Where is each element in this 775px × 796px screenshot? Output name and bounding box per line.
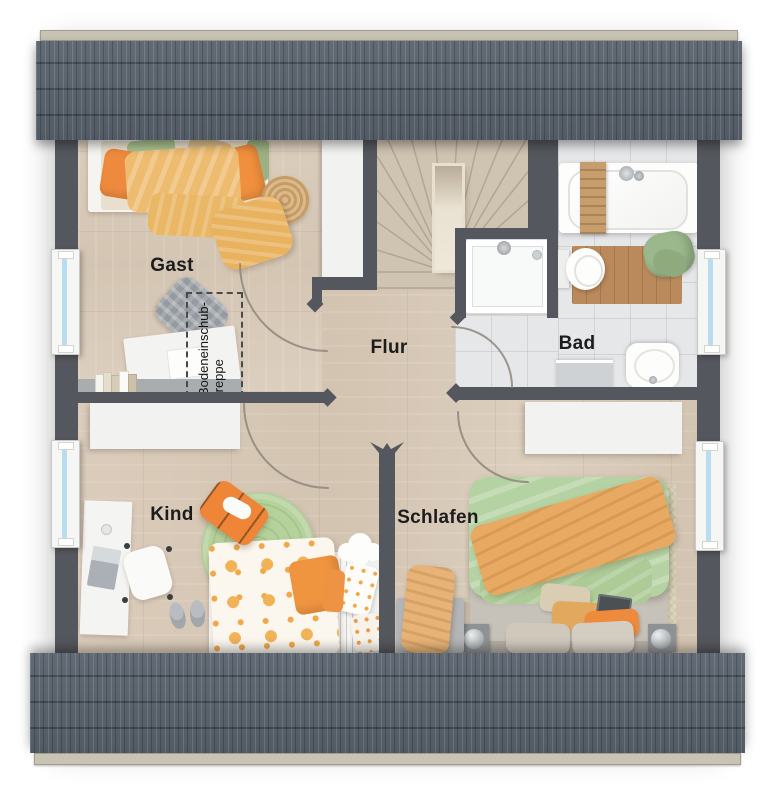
window-glass xyxy=(62,449,67,539)
kind-wardrobe xyxy=(90,403,240,449)
window-schlafen xyxy=(695,441,724,551)
schlafen-pillow-gray-1 xyxy=(505,622,570,655)
wall-kind-schlafen xyxy=(379,452,395,653)
room-label-kind: Kind xyxy=(150,504,193,526)
window-bad xyxy=(697,249,726,355)
room-label-bad: Bad xyxy=(559,333,596,355)
schlafen-pillow-gray-2 xyxy=(571,620,635,655)
bathtub-shower-head xyxy=(634,171,644,181)
wall-shower-right xyxy=(547,228,558,318)
kind-mug xyxy=(101,524,112,535)
kind-chair-wheel-4 xyxy=(167,594,173,600)
window-handle xyxy=(702,443,718,451)
wall-exterior-right xyxy=(697,138,720,653)
bath-bench xyxy=(556,360,613,390)
room-label-flur: Flur xyxy=(370,337,407,359)
floor-plan: Bodeneinschub- treppe xyxy=(0,0,775,796)
kind-chair-wheel-1 xyxy=(124,543,130,549)
window-handle xyxy=(702,541,718,549)
kind-chair-wheel-2 xyxy=(166,546,172,552)
attic-ladder-label: Bodeneinschub- treppe xyxy=(196,286,226,396)
window-handle xyxy=(704,345,720,353)
shower-drain xyxy=(532,250,542,260)
window-glass xyxy=(706,450,711,542)
window-glass xyxy=(708,258,713,346)
wall-stair-west xyxy=(363,138,377,278)
shower-head xyxy=(497,241,511,255)
window-kind xyxy=(51,440,80,548)
window-handle xyxy=(704,251,720,259)
window-handle xyxy=(58,442,74,450)
kind-cloud-shelf xyxy=(348,533,372,557)
wall-gast-kind xyxy=(55,392,330,403)
window-gast xyxy=(51,249,80,355)
room-label-gast: Gast xyxy=(150,255,193,277)
schlafen-lamp-sphere-left xyxy=(464,629,484,649)
schlafen-wardrobe xyxy=(525,402,682,454)
schlafen-lamp-sphere-right xyxy=(651,629,671,649)
roof-top xyxy=(36,41,742,140)
floor-tiles-bad-entry xyxy=(455,315,558,392)
roof-bottom xyxy=(30,653,745,753)
schlafen-bench-blanket xyxy=(400,564,455,656)
wall-stair-east xyxy=(528,138,558,238)
washbasin-faucet xyxy=(649,376,657,384)
gast-wardrobe xyxy=(322,140,364,278)
wall-bad-south xyxy=(455,387,698,400)
gast-books xyxy=(95,371,135,391)
wall-shower-left xyxy=(455,228,466,318)
room-label-schlafen: Schlafen xyxy=(397,507,479,529)
window-handle xyxy=(58,538,74,546)
roof-gutter-bottom xyxy=(34,753,741,765)
bathtub-faucet xyxy=(619,166,634,181)
kind-pillow-small-2 xyxy=(323,569,346,612)
attic-ladder-label-line2: treppe xyxy=(211,286,226,396)
attic-ladder-label-line1: Bodeneinschub- xyxy=(196,286,211,396)
roof-gutter-top xyxy=(40,30,738,41)
bathtub-caddy xyxy=(580,162,606,234)
window-handle xyxy=(58,251,74,259)
wall-shower-top xyxy=(455,228,558,239)
toilet-seat xyxy=(574,255,603,287)
window-glass xyxy=(62,258,67,346)
kind-chair-wheel-3 xyxy=(122,597,128,603)
window-handle xyxy=(58,345,74,353)
